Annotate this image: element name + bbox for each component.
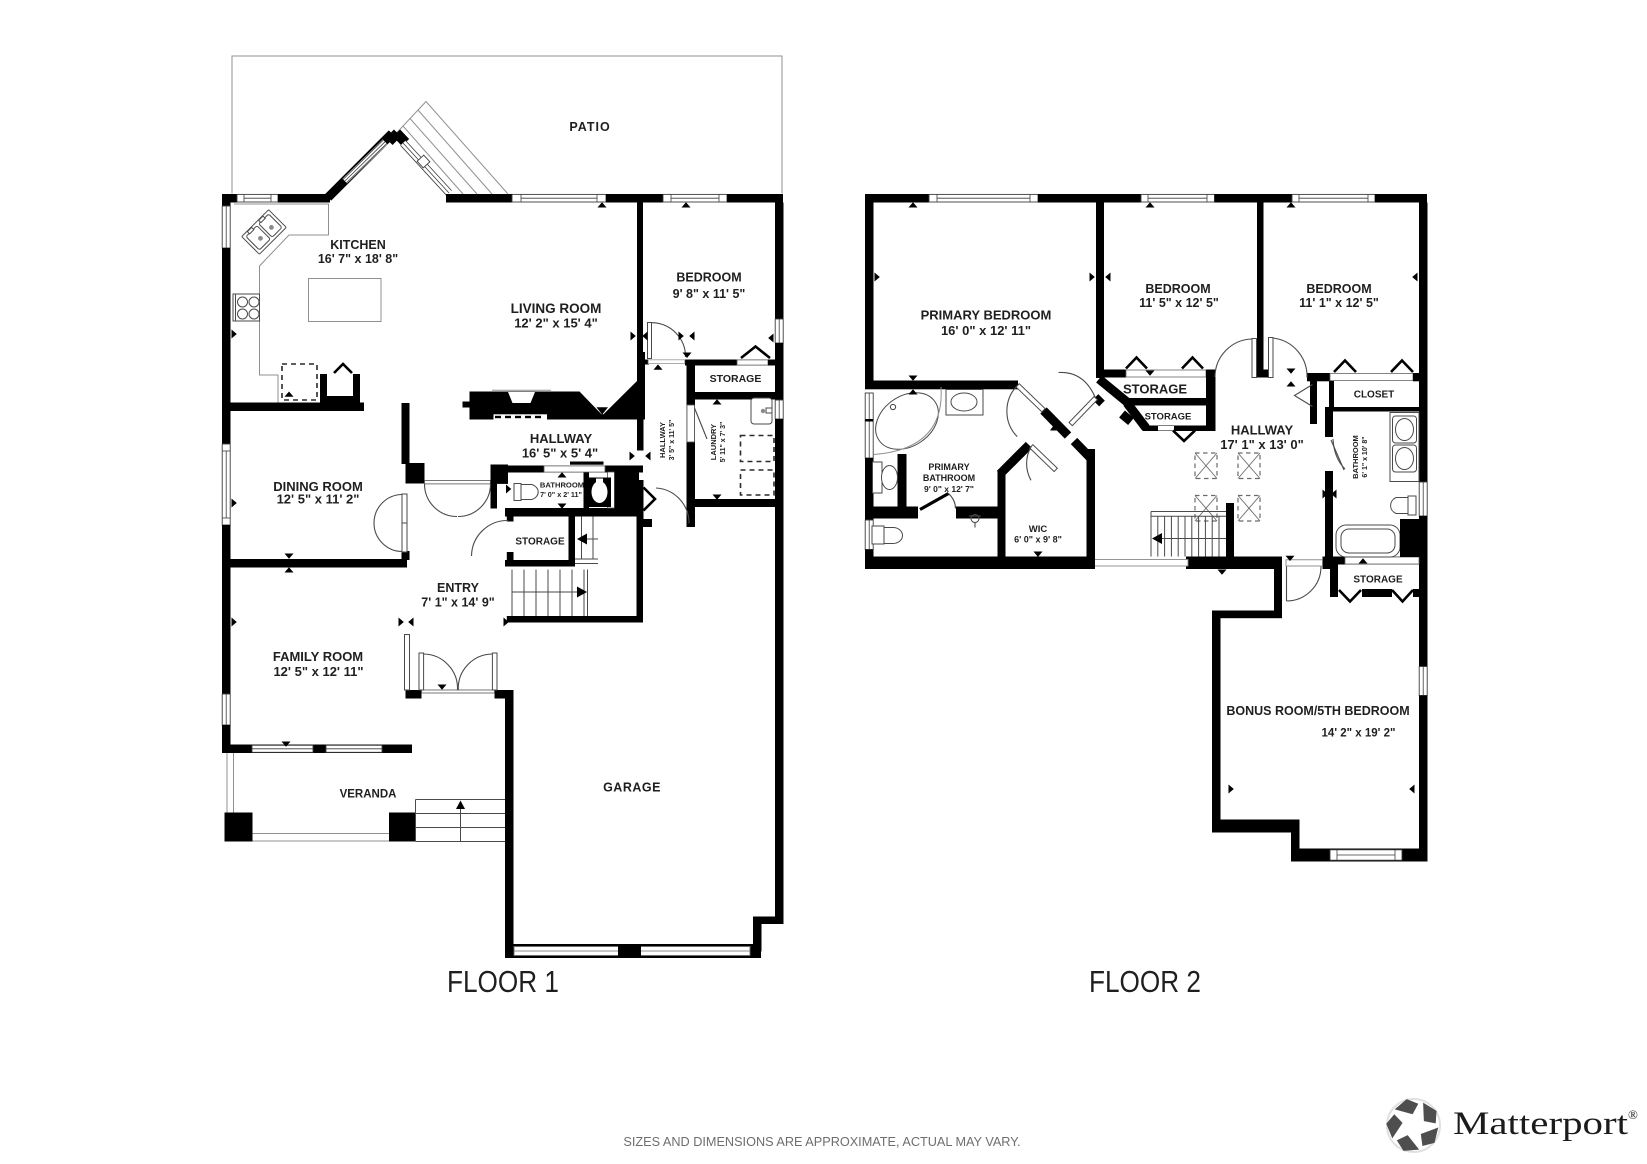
svg-text:BONUS ROOM/5TH BEDROOM: BONUS ROOM/5TH BEDROOM — [1226, 704, 1409, 718]
svg-text:PRIMARY BEDROOM: PRIMARY BEDROOM — [921, 308, 1052, 323]
svg-text:FLOOR 2: FLOOR 2 — [1089, 964, 1201, 999]
svg-text:LAUNDRY: LAUNDRY — [709, 424, 718, 460]
svg-text:ENTRY: ENTRY — [437, 581, 480, 595]
svg-text:SIZES AND DIMENSIONS ARE APPRO: SIZES AND DIMENSIONS ARE APPROXIMATE, AC… — [623, 1135, 1020, 1149]
svg-text:HALLWAY: HALLWAY — [530, 431, 593, 446]
svg-text:VERANDA: VERANDA — [340, 789, 397, 801]
svg-text:LIVING ROOM: LIVING ROOM — [511, 301, 602, 316]
svg-text:PRIMARY: PRIMARY — [928, 462, 969, 472]
svg-text:6' 0" x 9' 8": 6' 0" x 9' 8" — [1014, 535, 1062, 545]
svg-text:FLOOR 1: FLOOR 1 — [447, 964, 559, 999]
svg-text:BATHROOM: BATHROOM — [1351, 435, 1360, 479]
svg-text:16' 0" x 12' 11": 16' 0" x 12' 11" — [941, 323, 1031, 338]
svg-text:®: ® — [1628, 1107, 1638, 1122]
svg-text:14' 2" x 19' 2": 14' 2" x 19' 2" — [1322, 728, 1396, 740]
svg-text:CLOSET: CLOSET — [1354, 390, 1395, 401]
svg-text:STORAGE: STORAGE — [515, 537, 565, 548]
svg-text:BEDROOM: BEDROOM — [1306, 282, 1371, 296]
svg-text:16' 5" x 5' 4": 16' 5" x 5' 4" — [522, 446, 598, 461]
svg-text:STORAGE: STORAGE — [710, 373, 762, 385]
svg-text:FAMILY ROOM: FAMILY ROOM — [273, 649, 363, 664]
svg-text:HALLWAY: HALLWAY — [658, 422, 667, 458]
svg-text:16' 7" x 18' 8": 16' 7" x 18' 8" — [318, 252, 398, 266]
svg-text:12' 5" x 12' 11": 12' 5" x 12' 11" — [273, 664, 363, 679]
svg-text:11' 5" x 12' 5": 11' 5" x 12' 5" — [1139, 296, 1219, 310]
svg-text:17' 1" x 13' 0": 17' 1" x 13' 0" — [1220, 437, 1304, 452]
svg-text:12' 5" x 11' 2": 12' 5" x 11' 2" — [277, 492, 360, 507]
svg-text:3' 5" x 11' 5": 3' 5" x 11' 5" — [669, 420, 676, 461]
svg-text:7' 0" x 2' 11": 7' 0" x 2' 11" — [540, 490, 582, 499]
svg-text:KITCHEN: KITCHEN — [330, 238, 386, 252]
svg-text:9' 0" x 12' 7": 9' 0" x 12' 7" — [924, 484, 974, 494]
svg-text:STORAGE: STORAGE — [1123, 382, 1187, 397]
svg-text:12' 2" x 15' 4": 12' 2" x 15' 4" — [514, 316, 598, 331]
svg-text:GARAGE: GARAGE — [603, 781, 661, 795]
svg-text:STORAGE: STORAGE — [1145, 412, 1192, 423]
svg-text:Matterport: Matterport — [1453, 1106, 1628, 1142]
svg-text:BEDROOM: BEDROOM — [676, 271, 741, 285]
svg-text:HALLWAY: HALLWAY — [1231, 423, 1294, 438]
svg-text:6' 1" x 10' 8": 6' 1" x 10' 8" — [1362, 436, 1369, 477]
svg-text:11' 1" x 12' 5": 11' 1" x 12' 5" — [1299, 296, 1379, 310]
svg-text:9' 8" x 11' 5": 9' 8" x 11' 5" — [673, 287, 746, 301]
svg-text:STORAGE: STORAGE — [1353, 575, 1403, 586]
svg-text:BATHROOM: BATHROOM — [923, 473, 975, 483]
svg-text:BEDROOM: BEDROOM — [1145, 282, 1210, 296]
svg-text:WIC: WIC — [1029, 524, 1048, 535]
svg-text:7' 1" x 14' 9": 7' 1" x 14' 9" — [421, 596, 494, 610]
svg-text:BATHROOM: BATHROOM — [540, 481, 584, 490]
svg-text:5' 11" x 7' 3": 5' 11" x 7' 3" — [720, 422, 727, 463]
svg-text:PATIO: PATIO — [569, 120, 610, 134]
